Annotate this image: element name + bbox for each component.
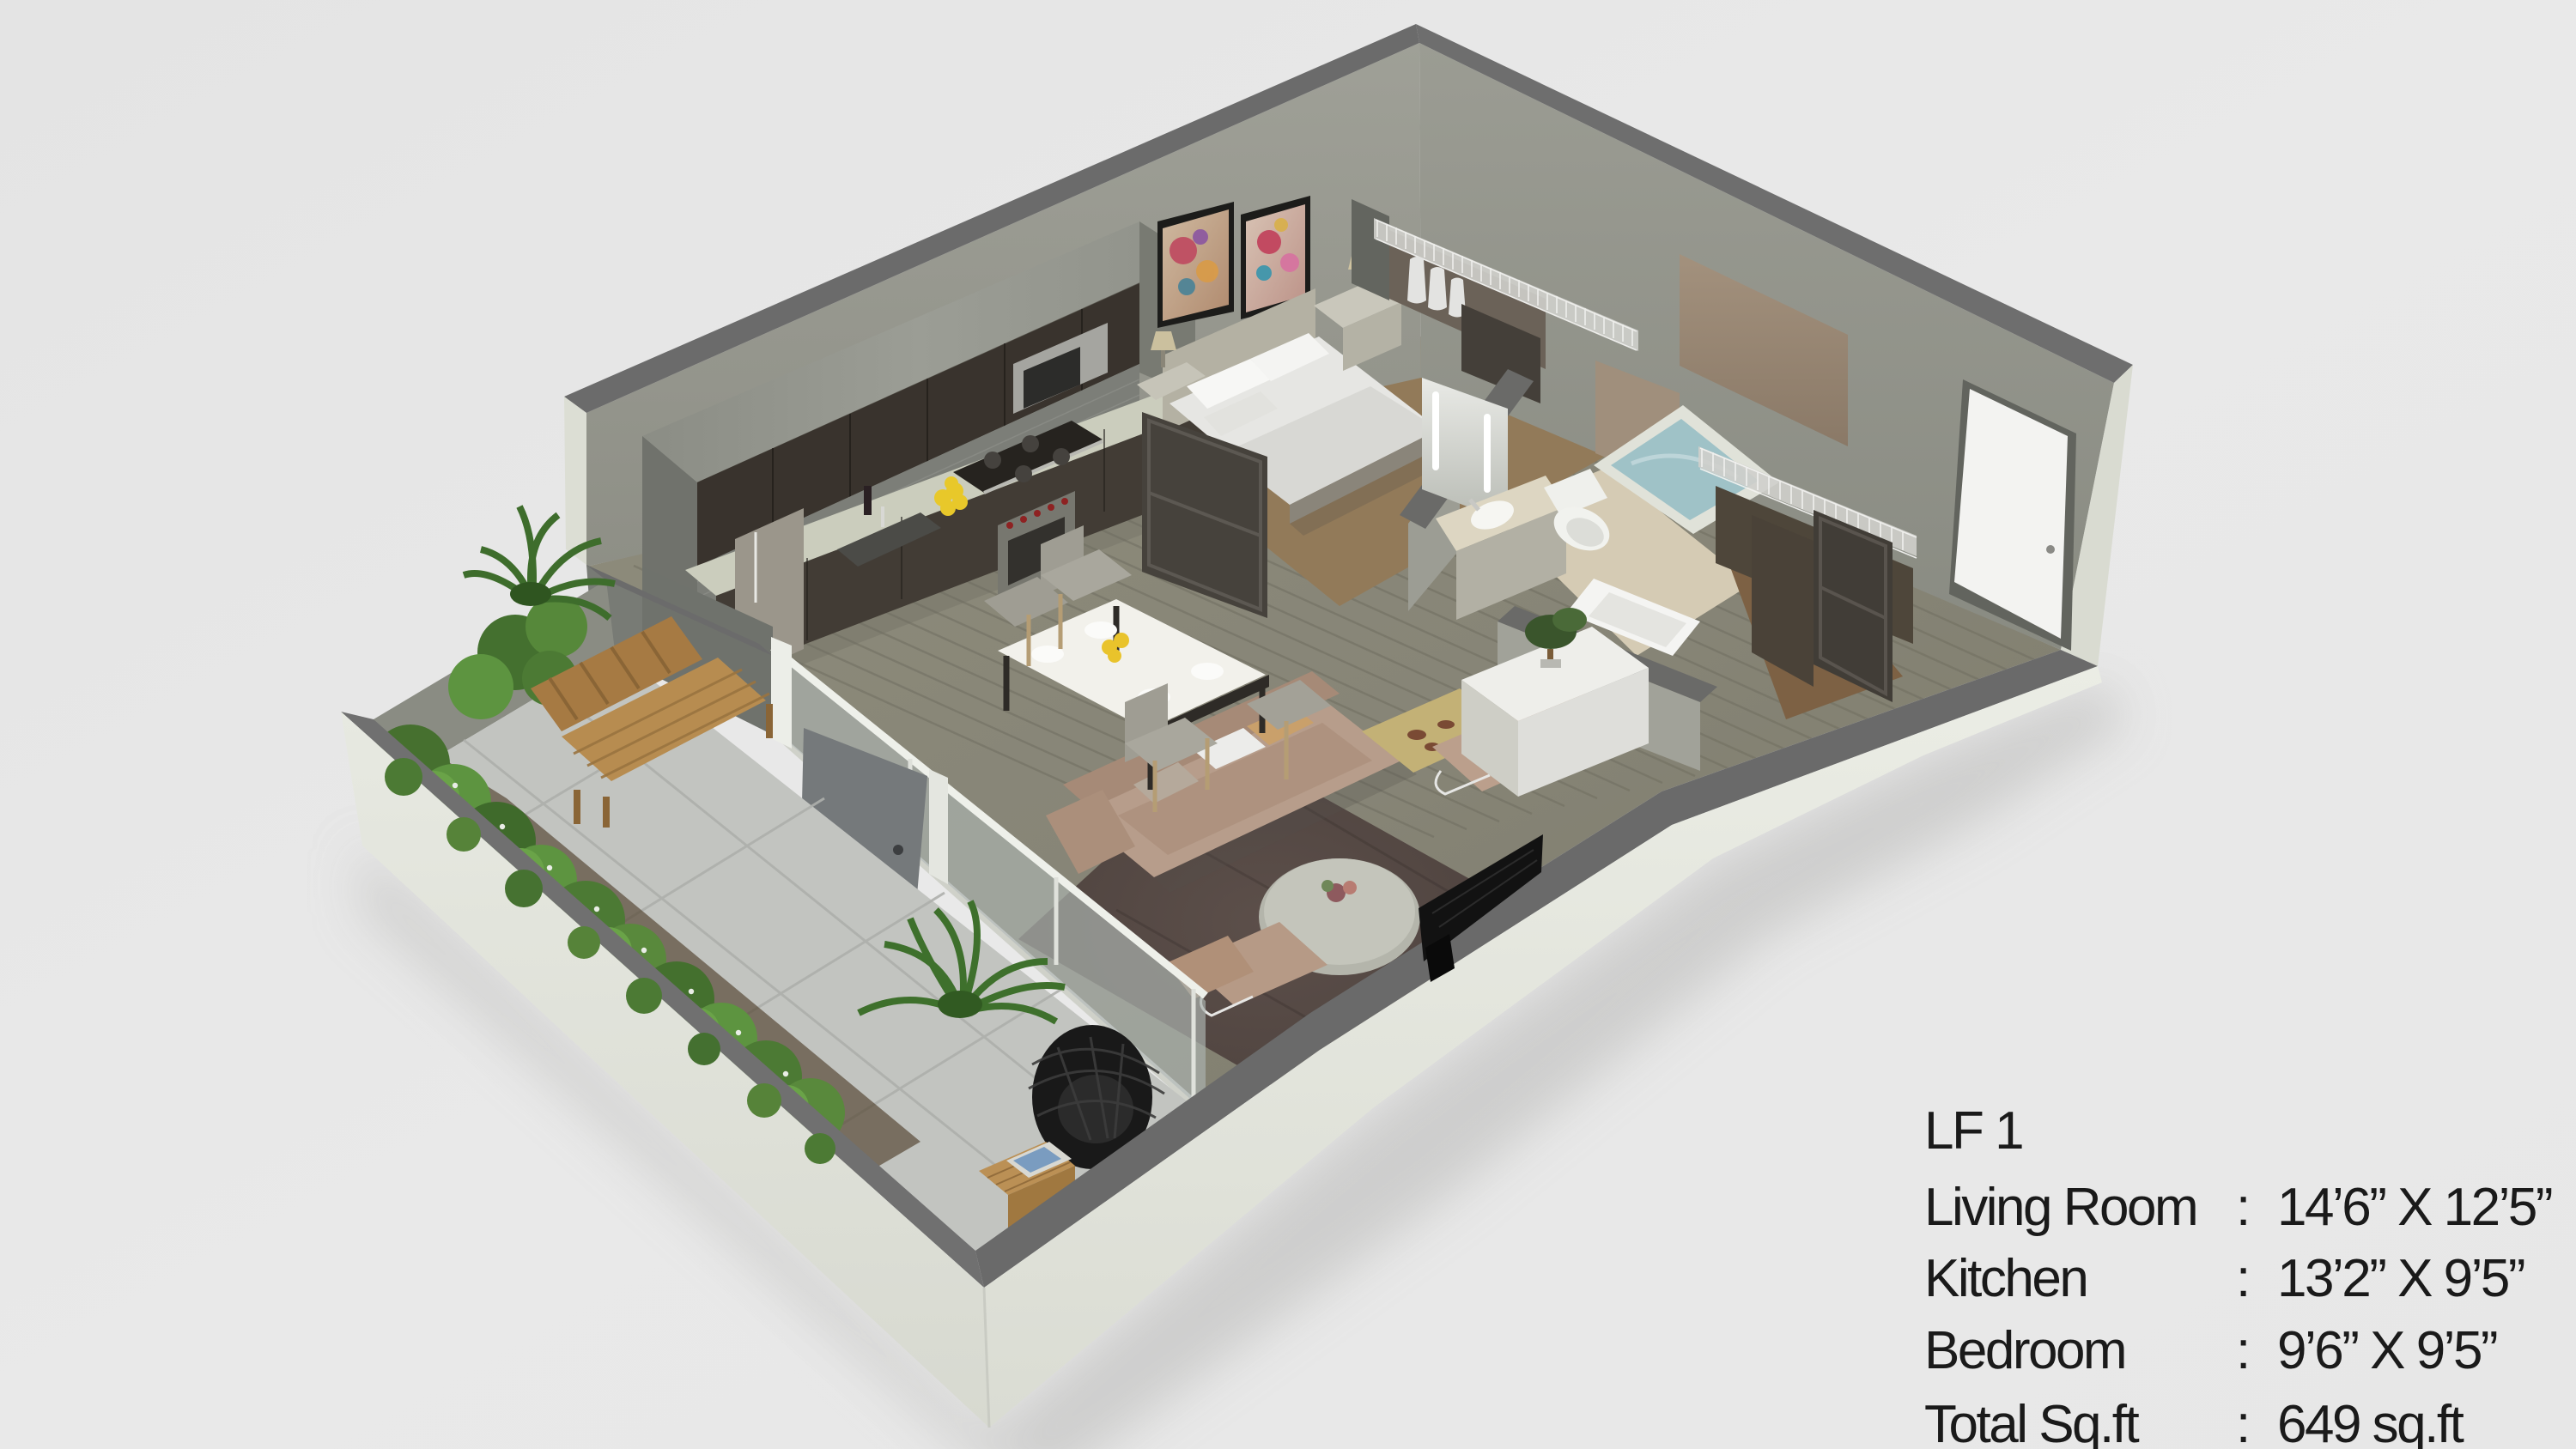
svg-text:Bedroom: Bedroom [1924,1321,2125,1380]
svg-text:13’2” X 9’5”: 13’2” X 9’5” [2277,1249,2524,1308]
svg-text::: : [2236,1249,2249,1308]
svg-text:649 sq.ft: 649 sq.ft [2277,1395,2464,1449]
svg-text::: : [2236,1395,2249,1449]
svg-text:14’6” X 12’5”: 14’6” X 12’5” [2277,1178,2552,1237]
svg-text:9’6” X 9’5”: 9’6” X 9’5” [2277,1321,2497,1380]
svg-text:Kitchen: Kitchen [1924,1249,2087,1308]
svg-text:Living Room: Living Room [1924,1178,2196,1237]
svg-text::: : [2236,1178,2249,1237]
svg-text::: : [2236,1321,2249,1380]
svg-text:LF 1: LF 1 [1924,1101,2022,1161]
svg-text:Total Sq.ft: Total Sq.ft [1924,1395,2139,1449]
